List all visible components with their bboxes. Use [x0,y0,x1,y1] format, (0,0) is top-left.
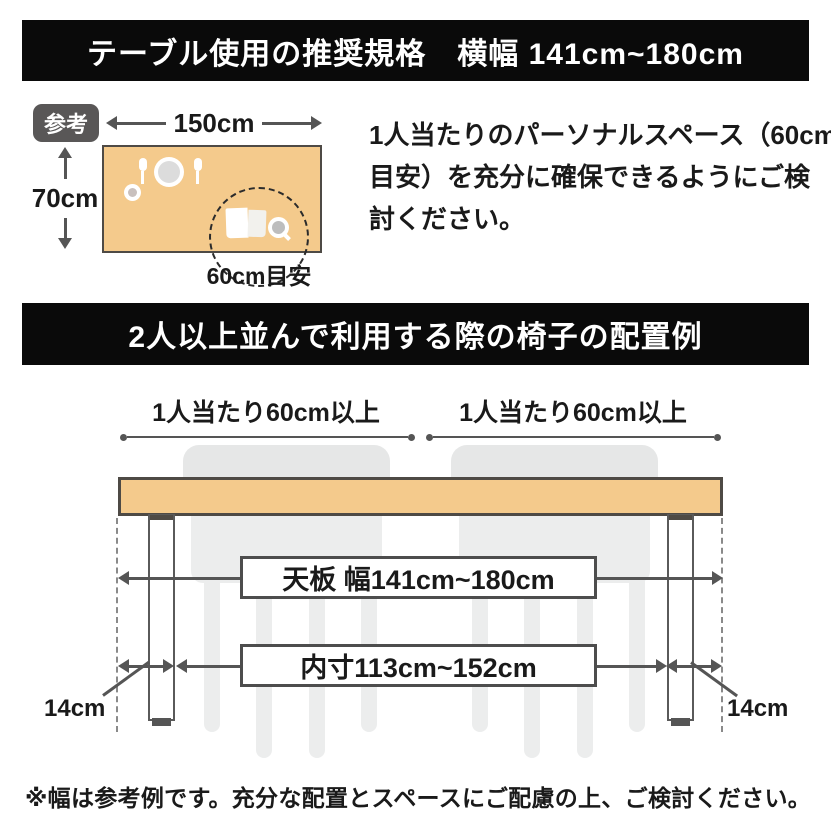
arrow-down-icon [58,238,72,249]
chair-leg [629,580,645,732]
header-banner-title: テーブル使用の推奨規格 横幅 141cm~180cm [87,29,744,73]
measure-dot-icon [714,434,721,441]
arrangement-banner: 2人以上並んで利用する際の椅子の配置例 [22,303,809,365]
footer-note: ※幅は参考例です。充分な配置とスペースにご配慮の上、ご検討ください。 [25,779,811,813]
arrow-up-icon [58,147,72,158]
leg-offset-label-right: 14cm [727,695,788,723]
arrow-left-icon [118,571,129,585]
inner-width-arrow-left [176,659,240,673]
dimension-line [187,665,240,668]
arrow-right-icon [712,571,723,585]
dimension-line [262,122,311,125]
dimension-line [64,218,67,239]
width-dimension-150cm: 150cm [106,109,322,137]
per-person-width-label-left: 1人当たり60cm以上 [117,393,415,429]
dimension-line [597,665,656,668]
inner-width-box: 内寸113cm~152cm [240,644,597,687]
table-edge-dashed-line-left [116,518,118,732]
table-edge-dashed-line-right [721,518,723,732]
measure-line [127,436,408,438]
dimension-line [64,158,67,179]
plate-icon [154,157,184,187]
reference-badge-label: 参考 [44,107,88,139]
inner-width-arrow-right [597,659,667,673]
measure-dot-icon [426,434,433,441]
arrow-right-icon [711,659,722,673]
chair-backrest-right [451,445,658,478]
table-leg-left [148,514,175,721]
top-board-width-label: 天板 幅141cm~180cm [282,558,554,597]
table-leg-mount-left [150,515,173,520]
dimension-line [117,122,166,125]
reference-badge: 参考 [33,104,99,142]
arrow-left-icon [666,659,677,673]
inner-width-label: 内寸113cm~152cm [300,646,536,685]
arrow-left-icon [106,116,117,130]
header-banner: テーブル使用の推奨規格 横幅 141cm~180cm [22,20,809,81]
dimension-line [129,577,240,580]
measure-line [433,436,714,438]
measure-dot-icon [120,434,127,441]
dimension-line [597,577,712,580]
arrow-right-icon [311,116,322,130]
per-person-measure-line-left [120,433,415,441]
chair-backrest-left [183,445,390,478]
depth-dimension-label: 70cm [32,179,99,218]
table-leg-right [667,514,694,721]
note-line-3: 討ください。 [369,198,824,240]
table-leg-foot-left [152,718,171,726]
per-person-measure-line-right [426,433,721,441]
depth-dimension-70cm: 70cm [33,147,97,249]
personal-space-note: 1人当たりのパーソナルスペース（60cm 目安）を充分に確保できるようにご検 討… [369,114,824,240]
arrow-left-icon [118,659,129,673]
fork-icon [138,158,147,184]
arrow-right-icon [163,659,174,673]
top-board-width-box: 天板 幅141cm~180cm [240,556,597,599]
chair-leg [204,580,220,732]
leg-offset-label-left: 14cm [44,695,105,723]
width-dimension-label: 150cm [166,108,263,139]
table-size-infographic: テーブル使用の推奨規格 横幅 141cm~180cm 参考 150cm 70cm… [0,0,831,831]
spoon-icon [193,158,202,184]
table-leg-foot-right [671,718,690,726]
arrangement-banner-title: 2人以上並んで利用する際の椅子の配置例 [128,312,702,356]
note-line-2: 目安）を充分に確保できるようにご検 [369,156,824,198]
table-top-board [118,477,723,516]
arrow-left-icon [176,659,187,673]
measure-dot-icon [408,434,415,441]
note-line-1: 1人当たりのパーソナルスペース（60cm [369,114,824,156]
per-person-width-label-right: 1人当たり60cm以上 [424,393,722,429]
top-board-arrow-right [597,571,723,585]
top-board-arrow-left [118,571,240,585]
personal-space-label: 60cm目安 [189,257,329,291]
table-leg-mount-right [669,515,692,520]
teacup-icon [124,184,141,201]
